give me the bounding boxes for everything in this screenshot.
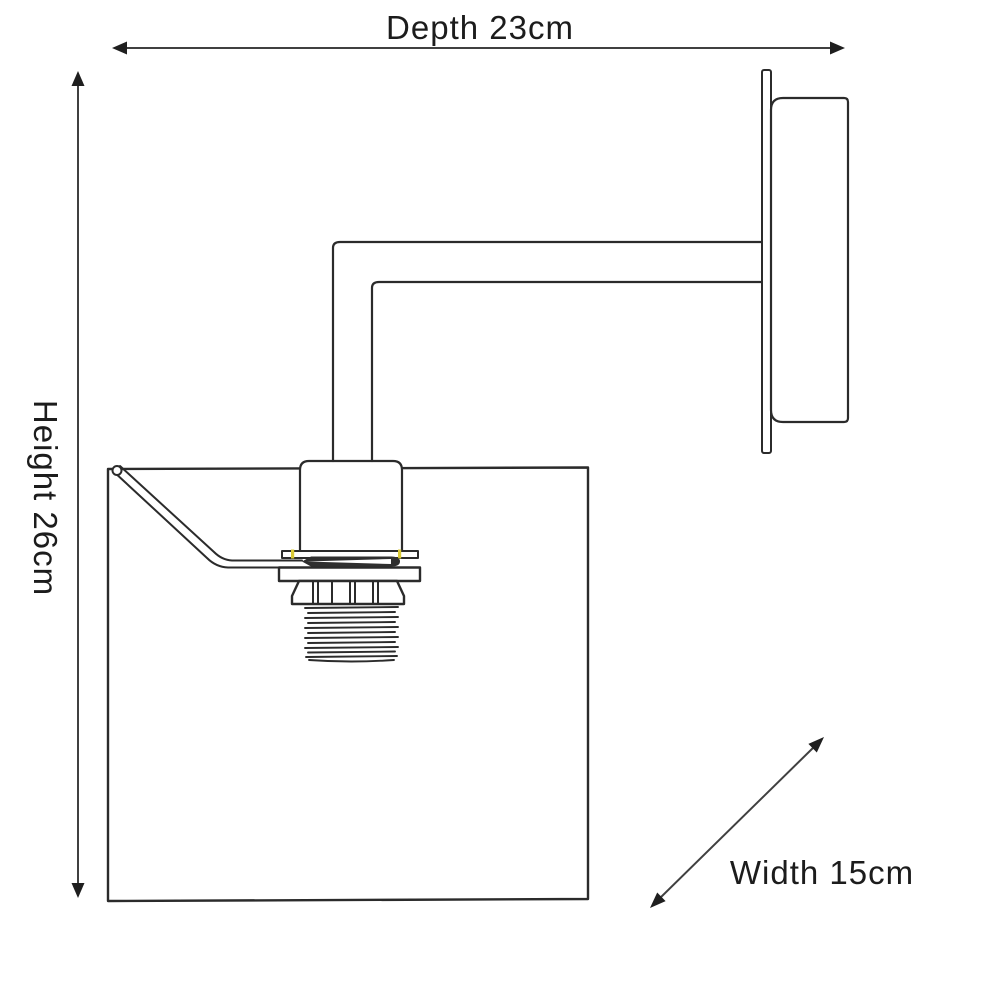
depth-label: Depth 23cm [386, 9, 574, 46]
hex-nut [292, 581, 404, 604]
stem-bottom-edge [309, 660, 394, 662]
flange-highlight-tick-left [291, 550, 294, 559]
arrowhead-up-icon [72, 71, 85, 86]
wall-plate-edge [762, 70, 771, 453]
arrowhead-left-icon [112, 42, 127, 55]
backplate [771, 98, 848, 422]
wall-mount [762, 70, 848, 453]
mount-arm [333, 242, 762, 461]
width-dimension: Width 15cm [650, 737, 914, 908]
socket-cup [300, 461, 402, 552]
height-dimension: Height 26cm [27, 71, 85, 898]
shade-pivot-ring [113, 466, 122, 475]
shade-support-lower-line [113, 471, 280, 568]
arrowhead-right-icon [830, 42, 845, 55]
shade-support-upper-line [120, 466, 302, 561]
threaded-stem [305, 607, 398, 662]
wall-light-dimension-drawing: Depth 23cm Height 26cm Width 15cm [0, 0, 1000, 1000]
lamp-drawing [108, 70, 848, 901]
washer-plate [279, 568, 420, 582]
socket-flange [279, 550, 420, 605]
height-label: Height 26cm [27, 400, 64, 596]
arrowhead-down-icon [72, 883, 85, 898]
flange-highlight-tick-right [398, 550, 401, 559]
dimension-diagram: Depth 23cm Height 26cm Width 15cm [0, 0, 1000, 1000]
depth-dimension: Depth 23cm [112, 9, 845, 55]
width-label: Width 15cm [730, 854, 914, 891]
